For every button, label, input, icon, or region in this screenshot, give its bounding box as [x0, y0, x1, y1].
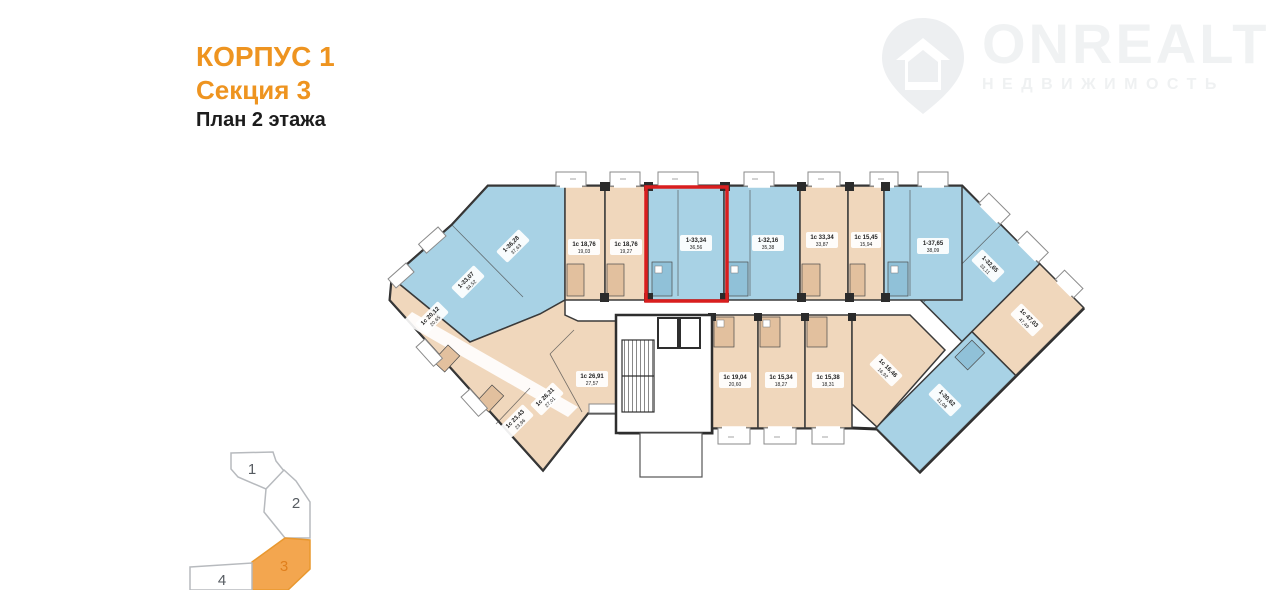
onrealt-pin-house-icon [878, 16, 968, 116]
svg-text:1-33,34: 1-33,34 [686, 238, 707, 244]
onrealt-watermark: ONREALT НЕДВИЖИМОСТЬ [878, 16, 1270, 116]
floor-plan-page: ONREALT НЕДВИЖИМОСТЬ КОРПУС 1 Секция 3 П… [0, 0, 1280, 590]
svg-text:1с 15,34: 1с 15,34 [769, 375, 793, 381]
balcony [764, 428, 796, 444]
balcony [918, 172, 948, 186]
svg-text:38,09: 38,09 [927, 248, 940, 254]
stove [731, 266, 738, 273]
bathroom-block [607, 264, 624, 296]
svg-text:1с 26,91: 1с 26,91 [580, 374, 604, 380]
svg-text:35,38: 35,38 [762, 245, 775, 251]
minimap-label-2: 2 [292, 495, 300, 512]
entrance-porch [640, 433, 702, 477]
minimap-label-4: 4 [218, 572, 226, 589]
balcony [744, 172, 774, 186]
balcony [589, 404, 616, 413]
bathroom-block [802, 264, 820, 296]
svg-text:1с 18,76: 1с 18,76 [572, 242, 596, 248]
building-title: КОРПУС 1 [196, 40, 335, 74]
balcony [718, 428, 750, 444]
stove [655, 266, 662, 273]
watermark-subtitle: НЕДВИЖИМОСТЬ [982, 76, 1270, 94]
svg-text:33,87: 33,87 [816, 242, 829, 248]
stove [717, 320, 724, 327]
svg-text:1с 19,04: 1с 19,04 [723, 375, 747, 381]
svg-text:1-37,65: 1-37,65 [923, 241, 944, 247]
minimap-label-1: 1 [248, 461, 256, 478]
section-minimap: 1 2 3 4 [190, 452, 310, 590]
svg-text:20,60: 20,60 [729, 382, 742, 388]
svg-text:19,27: 19,27 [620, 249, 633, 255]
stove [763, 320, 770, 327]
elevator [680, 318, 700, 348]
svg-text:36,56: 36,56 [690, 245, 703, 251]
floor-title: План 2 этажа [196, 107, 335, 134]
svg-text:1с 15,38: 1с 15,38 [816, 375, 840, 381]
stove [891, 266, 898, 273]
bathroom-block [567, 264, 584, 296]
plan-header: КОРПУС 1 Секция 3 План 2 этажа [196, 40, 335, 134]
svg-text:18,31: 18,31 [822, 382, 835, 388]
svg-text:1с 15,45: 1с 15,45 [854, 235, 878, 241]
svg-text:18,27: 18,27 [775, 382, 788, 388]
svg-text:1с 18,76: 1с 18,76 [614, 242, 638, 248]
svg-text:27,57: 27,57 [586, 381, 599, 387]
balcony [812, 428, 844, 444]
bathroom-block [807, 317, 827, 347]
minimap-label-3: 3 [280, 558, 288, 575]
svg-text:15,94: 15,94 [860, 242, 873, 248]
svg-text:1-32,16: 1-32,16 [758, 238, 779, 244]
elevator [658, 318, 678, 348]
section-title: Секция 3 [196, 74, 335, 107]
svg-text:1с 33,34: 1с 33,34 [810, 235, 834, 241]
svg-text:19,03: 19,03 [578, 249, 591, 255]
watermark-brand: ONREALT [982, 16, 1270, 72]
bathroom-block [850, 264, 865, 296]
